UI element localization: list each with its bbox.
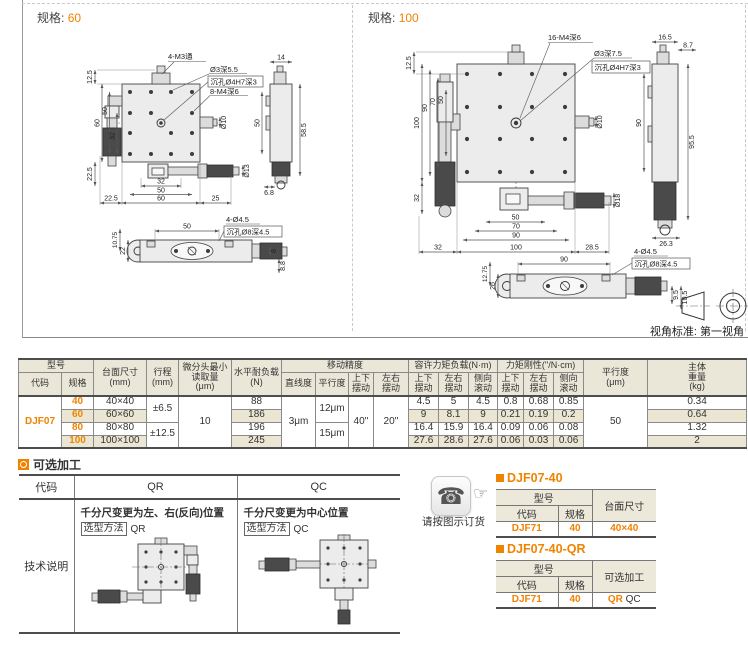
header-roll: 侧向 滚动 (554, 372, 584, 396)
qc-description: 千分尺变更为中心位置 (244, 505, 397, 520)
callout-label: 4-Ø4.5 (634, 247, 657, 256)
dim-label: 26.3 (659, 241, 673, 248)
dim-label: 22.5 (87, 167, 94, 181)
callout-label: 沉孔Ø8深4.5 (227, 228, 270, 237)
spec-value: 100 (399, 11, 419, 25)
header-size: 规格 (62, 372, 94, 396)
order2-header-code: 代码 (496, 577, 558, 593)
header-parallelism: 平行度 (μm) (584, 359, 648, 396)
phone-icon: ☎ (437, 485, 466, 508)
method-value: QR (131, 524, 146, 535)
cell-moment-roll: 4.5 (469, 396, 498, 409)
dim-label: 22.5 (104, 196, 118, 203)
order-example2-text: DJF07-40-QR (507, 542, 586, 556)
dim-label: 60 (95, 119, 102, 127)
dim-label: 28.5 (585, 245, 599, 252)
cell-table-size: 40×40 (94, 396, 147, 409)
header-table-size: 台面尺寸 (mm) (94, 359, 147, 396)
cell-stiff-ud: 0.8 (498, 396, 524, 409)
header-pitch: 上下 摆动 (409, 372, 439, 396)
dim-label: 32 (110, 132, 117, 140)
dim-label: 50 (438, 96, 445, 104)
callout-label: 沉孔Ø4H7深3 (211, 78, 257, 87)
callout-label: 沉孔Ø4H7深3 (595, 63, 641, 72)
header-stiffness-group: 力矩刚性(''/N·cm) (498, 359, 584, 372)
header-yaw: 左右 摆动 (524, 372, 554, 396)
cell-parallel: 15μm (316, 422, 349, 448)
dim-label: 60 (157, 196, 165, 203)
header-roll: 侧向 滚动 (469, 372, 498, 396)
qc-mini-drawing (242, 536, 392, 628)
method-box-label: 选型方法 (244, 522, 290, 536)
cell-table-size: 100×100 (94, 435, 147, 448)
dim-label: 50 (157, 188, 165, 195)
cell-stiff-lr: 0.06 (524, 422, 554, 435)
optional-table: 代码 QR QC 技术说明 千分尺变更为左、右(反向)位置 选型方法 QR (19, 474, 400, 634)
cell-weight: 1.32 (648, 422, 747, 435)
dim-label: 50 (512, 215, 520, 222)
cell-weight: 0.34 (648, 396, 747, 409)
order2-header-opt: 可选加工 (592, 561, 656, 593)
dim-label: 95.5 (689, 135, 696, 149)
callout-label: 16-M4深6 (548, 33, 581, 42)
dim-label: 26 (490, 282, 497, 290)
bottom-view-100: 12.75 26 90 4-Ø4.5 沉孔Ø8深4.5 9.5 10.5 (482, 247, 690, 309)
header-min-read: 微分头最小 读取量 (μm) (179, 359, 232, 396)
option-bullet-icon (18, 459, 29, 470)
cell-moment-ud: 27.6 (409, 435, 439, 448)
order2-options: QR QC (592, 593, 656, 608)
cell-moment-ud: 16.4 (409, 422, 439, 435)
cell-parallel: 12μm (316, 396, 349, 422)
header-stroke: 行程 (mm) (147, 359, 179, 396)
dim-label: 100 (414, 117, 421, 129)
cell-stiff-lr: 0.03 (524, 435, 554, 448)
header-pitch: 上下 摆动 (349, 372, 374, 396)
spec-label: 规格: (368, 11, 395, 25)
optional-title-text: 可选加工 (33, 456, 81, 473)
order1-header-table-size: 台面尺寸 (592, 490, 656, 522)
dim-label: 50 (183, 224, 191, 231)
cell-min-read: 10 (179, 396, 232, 448)
order-note: 请按图示订货 (422, 514, 485, 529)
cell-moment-lr: 5 (439, 396, 469, 409)
cell-load: 88 (232, 396, 282, 409)
dim-label: 50 (255, 119, 262, 127)
method-value: QC (294, 524, 309, 535)
row-40: DJF07 40 40×40 ±6.5 10 88 3μm 12μm 40'' … (19, 396, 747, 409)
opt-qr-cell: 千分尺变更为左、右(反向)位置 选型方法 QR (74, 499, 237, 633)
spec-label: 规格: (37, 11, 64, 25)
order1-table-size: 40×40 (592, 522, 656, 537)
dim-label: 8.7 (683, 43, 693, 50)
order-example2-table: 型号 可选加工 代码 规格 DJF71 40 QR QC (496, 560, 656, 609)
cell-stiff-lr: 0.19 (524, 409, 554, 422)
order2-header-model: 型号 (496, 561, 592, 577)
cell-size: 60 (62, 409, 94, 422)
cell-moment-ud: 4.5 (409, 396, 439, 409)
cell-size: 40 (62, 396, 94, 409)
cell-yaw: 20'' (374, 396, 409, 448)
order-example1-text: DJF07-40 (507, 471, 563, 485)
view-standard-note: 视角标准: 第一视角 (650, 324, 744, 338)
header-yaw: 左右 摆动 (374, 372, 409, 396)
dim-label: 25 (212, 196, 220, 203)
technical-drawing-100: 16-M4深6 Ø3深7.5 沉孔Ø4H7深3 12.5 100 90 70 5… (352, 26, 748, 337)
optional-section-title: 可选加工 (18, 456, 81, 473)
dim-label: 100 (510, 245, 522, 252)
header-moment-group: 容许力矩负载(N·m) (409, 359, 498, 372)
dim-label: Ø10 (221, 116, 228, 129)
header-weight: 主体 重量 (kg) (648, 359, 747, 396)
order1-code: DJF71 (496, 522, 558, 537)
order2-code: DJF71 (496, 593, 558, 608)
drawing-area-bottom-rule (22, 337, 748, 338)
order1-header-code: 代码 (496, 506, 558, 522)
callout-label: Ø3深5.5 (210, 65, 238, 74)
cell-table-size: 60×60 (94, 409, 147, 422)
order1-size: 40 (558, 522, 592, 537)
cell-stiff-roll: 0.06 (554, 435, 584, 448)
spec-100-title: 规格: 100 (368, 9, 419, 26)
technical-drawing-60: 4-M3通 Ø3深5.5 沉孔Ø4H7深3 8-M4深6 12.5 60 50 … (22, 26, 352, 337)
cell-stiff-roll: 0.08 (554, 422, 584, 435)
cell-load: 186 (232, 409, 282, 422)
dim-label: 70 (430, 98, 437, 106)
dim-label: 90 (560, 257, 568, 264)
cell-stiff-lr: 0.68 (524, 396, 554, 409)
dim-label: 16.5 (658, 35, 672, 42)
dim-label: 12.75 (482, 265, 489, 282)
order2-opt-qc: QC (626, 594, 641, 605)
cell-parallelism: 50 (584, 396, 648, 448)
opt-qc-cell: 千分尺变更为中心位置 选型方法 QC (237, 499, 400, 633)
cell-stiff-ud: 0.06 (498, 435, 524, 448)
dim-label: 58.5 (301, 123, 308, 137)
dim-label: 14 (277, 55, 285, 62)
cell-size: 80 (62, 422, 94, 435)
cell-load: 196 (232, 422, 282, 435)
drawing-area-top-rule (22, 3, 748, 4)
opt-header-qr: QR (74, 475, 237, 499)
cell-stiff-roll: 0.2 (554, 409, 584, 422)
cell-table-size: 80×80 (94, 422, 147, 435)
dim-label: Ø13 (244, 164, 251, 177)
dim-label: Ø18 (615, 194, 622, 207)
cell-straightness: 3μm (282, 396, 316, 448)
order2-size: 40 (558, 593, 592, 608)
cell-weight: 0.64 (648, 409, 747, 422)
dim-label: 6.8 (264, 190, 274, 197)
cell-stroke: ±12.5 (147, 422, 179, 448)
cell-code: DJF07 (19, 396, 62, 448)
dim-label: 8 (271, 249, 278, 253)
cell-load: 245 (232, 435, 282, 448)
catalog-page: { "colors": { "accent": "#f08300", "head… (0, 0, 748, 659)
dim-label: 12.5 (406, 56, 413, 70)
cell-size: 100 (62, 435, 94, 448)
opt-row-label: 技术说明 (19, 499, 74, 633)
cell-stiff-ud: 0.09 (498, 422, 524, 435)
header-accuracy-group: 移动精度 (282, 359, 409, 372)
header-code: 代码 (19, 372, 62, 396)
dim-label: 9.5 (673, 290, 680, 300)
dim-label: 32 (157, 179, 165, 186)
dim-label: 90 (512, 233, 520, 240)
cell-moment-roll: 16.4 (469, 422, 498, 435)
dim-label: 32 (434, 245, 442, 252)
cell-pitch: 40'' (349, 396, 374, 448)
dim-label: 12.5 (87, 70, 94, 84)
micrometer-y-100 (435, 74, 460, 217)
bottom-view-60: 10.75 22 50 4-Ø4.5 沉孔Ø8深4.5 8 8.8 (112, 215, 287, 273)
bullet-square-icon (496, 474, 504, 482)
spec-table: 型号 台面尺寸 (mm) 行程 (mm) 微分头最小 读取量 (μm) 水平耐负… (18, 358, 747, 449)
cell-stiff-roll: 0.85 (554, 396, 584, 409)
callout-label: 沉孔Ø8深4.5 (635, 260, 678, 269)
cell-moment-lr: 28.6 (439, 435, 469, 448)
dim-label: 22 (120, 247, 127, 255)
cell-stiff-ud: 0.21 (498, 409, 524, 422)
header-pitch: 上下 摆动 (498, 372, 524, 396)
order1-header-size: 规格 (558, 506, 592, 522)
qc-method: 选型方法 QC (244, 522, 401, 536)
dim-label: 70 (512, 224, 520, 231)
qr-mini-drawing (83, 536, 233, 624)
dim-label: 90 (422, 104, 429, 112)
cell-stroke: ±6.5 (147, 396, 179, 422)
header-yaw: 左右 摆动 (439, 372, 469, 396)
header-straightness: 直线度 (282, 372, 316, 396)
cell-moment-ud: 9 (409, 409, 439, 422)
opt-header-code: 代码 (19, 475, 74, 499)
order-example2-title: DJF07-40-QR (496, 542, 586, 556)
micrometer-y-60 (103, 96, 122, 166)
cell-moment-lr: 8.1 (439, 409, 469, 422)
dim-label: 32 (414, 194, 421, 202)
dim-label: 90 (636, 119, 643, 127)
order2-header-size: 规格 (558, 577, 592, 593)
order-example1-title: DJF07-40 (496, 471, 563, 485)
order2-opt-qr: QR (608, 594, 623, 605)
dim-label: 50 (102, 107, 109, 115)
callout-label: 8-M4深6 (210, 87, 239, 96)
header-parallel: 平行度 (316, 372, 349, 396)
cell-moment-lr: 15.9 (439, 422, 469, 435)
dim-label: Ø10 (597, 115, 604, 128)
plan-view-100 (442, 45, 596, 198)
bullet-square-icon (496, 545, 504, 553)
header-horizontal-load: 水平耐负载 (N) (232, 359, 282, 396)
cell-moment-roll: 27.6 (469, 435, 498, 448)
phone-button: ☎ (431, 476, 471, 516)
spec-value: 60 (68, 11, 81, 25)
dim-label: 10.75 (112, 231, 119, 248)
pointing-hand-icon: ☞ (473, 484, 488, 504)
cell-weight: 2 (648, 435, 747, 448)
spec-60-title: 规格: 60 (37, 9, 81, 26)
callout-label: 4-M3通 (168, 51, 193, 61)
callout-label: Ø3深7.5 (594, 49, 622, 58)
qr-method: 选型方法 QR (81, 522, 237, 536)
cell-moment-roll: 9 (469, 409, 498, 422)
method-box-label: 选型方法 (81, 522, 127, 536)
header-model: 型号 (19, 359, 94, 372)
opt-header-qc: QC (237, 475, 400, 499)
dim-label: 8.8 (280, 261, 287, 271)
order-example1-table: 型号 台面尺寸 代码 规格 DJF71 40 40×40 (496, 489, 656, 538)
callout-label: 4-Ø4.5 (226, 215, 249, 224)
order1-header-model: 型号 (496, 490, 592, 506)
qr-description: 千分尺变更为左、右(反向)位置 (81, 505, 233, 520)
